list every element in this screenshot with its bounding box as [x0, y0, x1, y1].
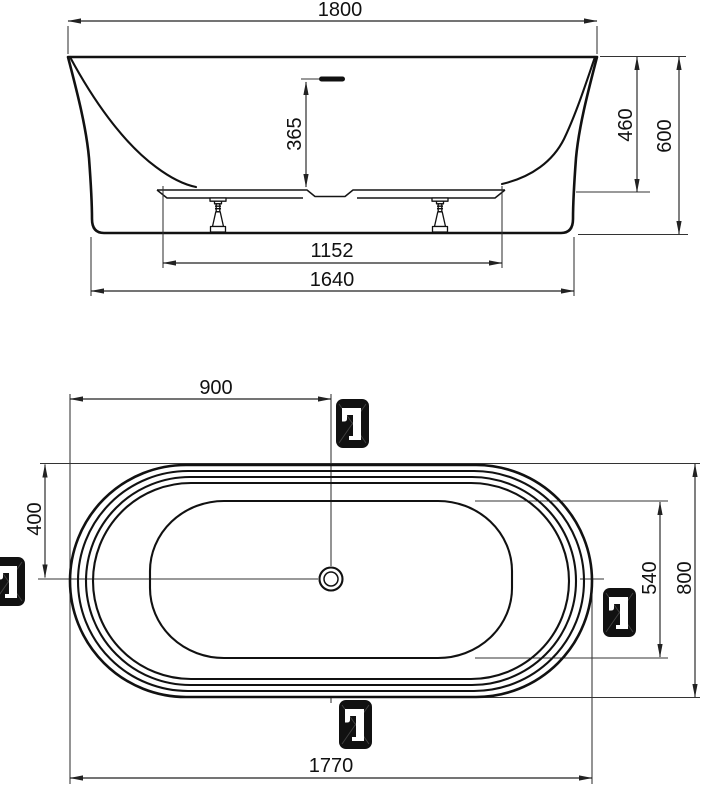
- faucet-marker-icon-left: [0, 557, 25, 606]
- tub-outer-profile: [68, 57, 597, 233]
- drain-inner-circle: [324, 572, 338, 586]
- dim-label-600: 600: [654, 119, 676, 152]
- dim-total-height: 600: [578, 57, 688, 235]
- dim-label-900: 900: [199, 377, 232, 399]
- dim-label-400: 400: [24, 502, 46, 535]
- tub-leg-left: [210, 198, 226, 232]
- dim-label-1152: 1152: [310, 240, 353, 262]
- dim-total-length: 1770: [70, 755, 592, 778]
- dim-center-from-top: 400: [24, 465, 46, 578]
- technical-drawing-canvas: 1800 365 460 600: [0, 0, 704, 788]
- dim-label-1640: 1640: [310, 269, 355, 291]
- dim-label-800: 800: [674, 561, 696, 594]
- dim-label-1770: 1770: [309, 755, 354, 777]
- dim-overflow-depth: 365: [284, 77, 345, 188]
- dim-inner-width: 540: [639, 502, 661, 657]
- dim-total-width: 800: [674, 464, 696, 697]
- faucet-marker-icon-top: [336, 399, 369, 448]
- dim-label-460: 460: [615, 108, 637, 141]
- dim-center-from-left: 900: [70, 377, 331, 399]
- front-elevation-view: 1800 365 460 600: [68, 0, 688, 296]
- faucet-marker-icon-bottom: [339, 700, 372, 749]
- overflow-mark: [319, 77, 345, 82]
- drain-outer-circle: [320, 568, 343, 591]
- dim-overall-width: 1800: [68, 0, 597, 54]
- bathtub-drawing: 1800 365 460 600: [0, 0, 704, 788]
- dim-label-540: 540: [639, 561, 661, 594]
- dim-label-365: 365: [284, 117, 306, 150]
- tub-floor-line: [157, 190, 505, 197]
- tub-leg-right: [432, 198, 448, 232]
- plan-view: 900 400 540 800 1770: [0, 377, 700, 784]
- faucet-marker-icon-right: [603, 588, 636, 637]
- dim-label-1800: 1800: [318, 0, 363, 21]
